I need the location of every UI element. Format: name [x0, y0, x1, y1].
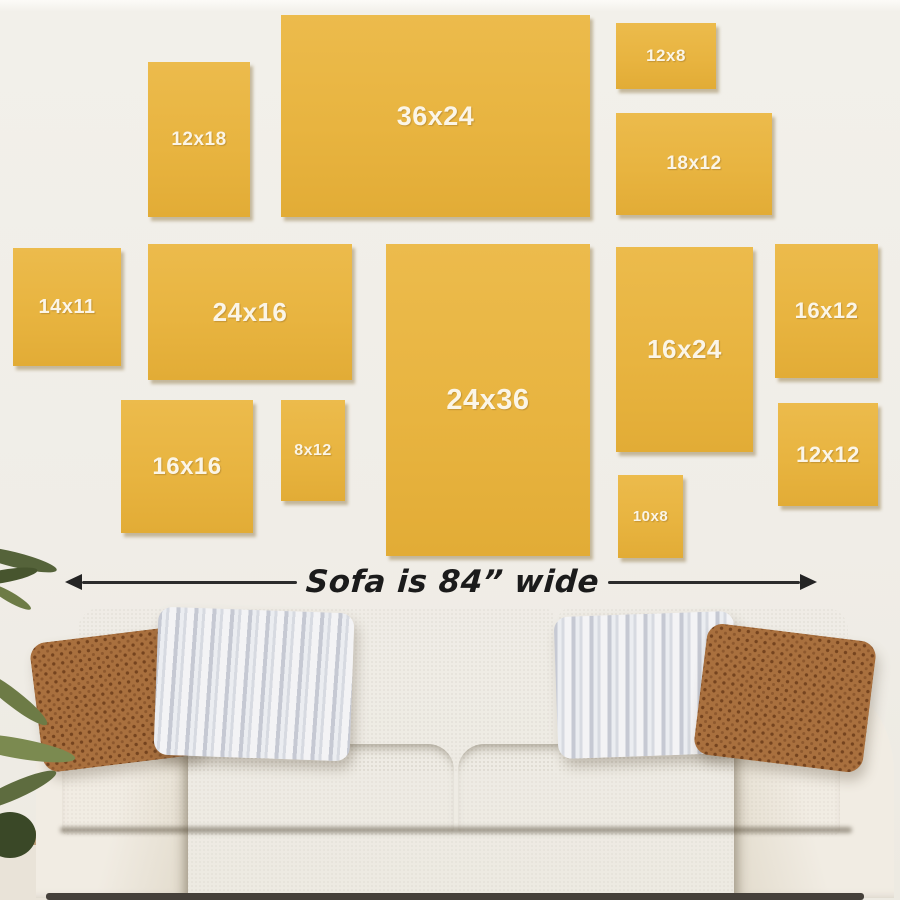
canvas-size-label: 10x8 — [633, 508, 668, 525]
canvas-size-label: 14x11 — [38, 296, 95, 319]
pillow-striped-left — [153, 607, 354, 762]
sofa-cushion-shadow — [60, 827, 852, 833]
canvas-box-12x12: 12x12 — [778, 403, 878, 506]
measure-line-left — [82, 581, 297, 584]
canvas-box-12x8: 12x8 — [616, 23, 716, 89]
canvas-size-label: 18x12 — [666, 153, 721, 175]
canvas-box-36x24: 36x24 — [281, 15, 590, 217]
canvas-box-16x16: 16x16 — [121, 400, 253, 533]
pillow-brown-right — [693, 622, 878, 774]
canvas-size-guide: 12x1836x2412x818x1214x1124x1624x3616x241… — [0, 0, 900, 900]
sofa-width-caption: Sofa is 84” wide — [305, 564, 601, 600]
sofa-floor-shadow — [46, 893, 864, 900]
canvas-size-label: 16x16 — [152, 453, 221, 481]
canvas-box-16x12: 16x12 — [775, 244, 878, 378]
sofa-width-measure: Sofa is 84” wide — [65, 558, 817, 606]
canvas-box-8x12: 8x12 — [281, 400, 345, 501]
canvas-box-18x12: 18x12 — [616, 113, 772, 215]
canvas-box-24x36: 24x36 — [386, 244, 590, 556]
canvas-box-16x24: 16x24 — [616, 247, 753, 452]
arrow-right-icon — [800, 574, 817, 590]
canvas-box-14x11: 14x11 — [13, 248, 121, 366]
canvas-box-24x16: 24x16 — [148, 244, 352, 380]
canvas-box-12x18: 12x18 — [148, 62, 250, 217]
arrow-left-icon — [65, 574, 82, 590]
measure-line-right — [608, 581, 800, 584]
canvas-size-label: 12x12 — [796, 442, 860, 468]
canvas-size-label: 24x16 — [213, 297, 288, 328]
canvas-size-label: 16x12 — [795, 298, 859, 324]
canvas-size-label: 24x36 — [446, 384, 529, 417]
canvas-box-10x8: 10x8 — [618, 475, 683, 558]
canvas-size-label: 16x24 — [647, 334, 722, 365]
canvas-size-label: 12x18 — [171, 129, 226, 151]
canvas-size-label: 12x8 — [646, 46, 686, 66]
canvas-size-label: 8x12 — [294, 442, 332, 460]
canvas-size-label: 36x24 — [397, 101, 475, 132]
